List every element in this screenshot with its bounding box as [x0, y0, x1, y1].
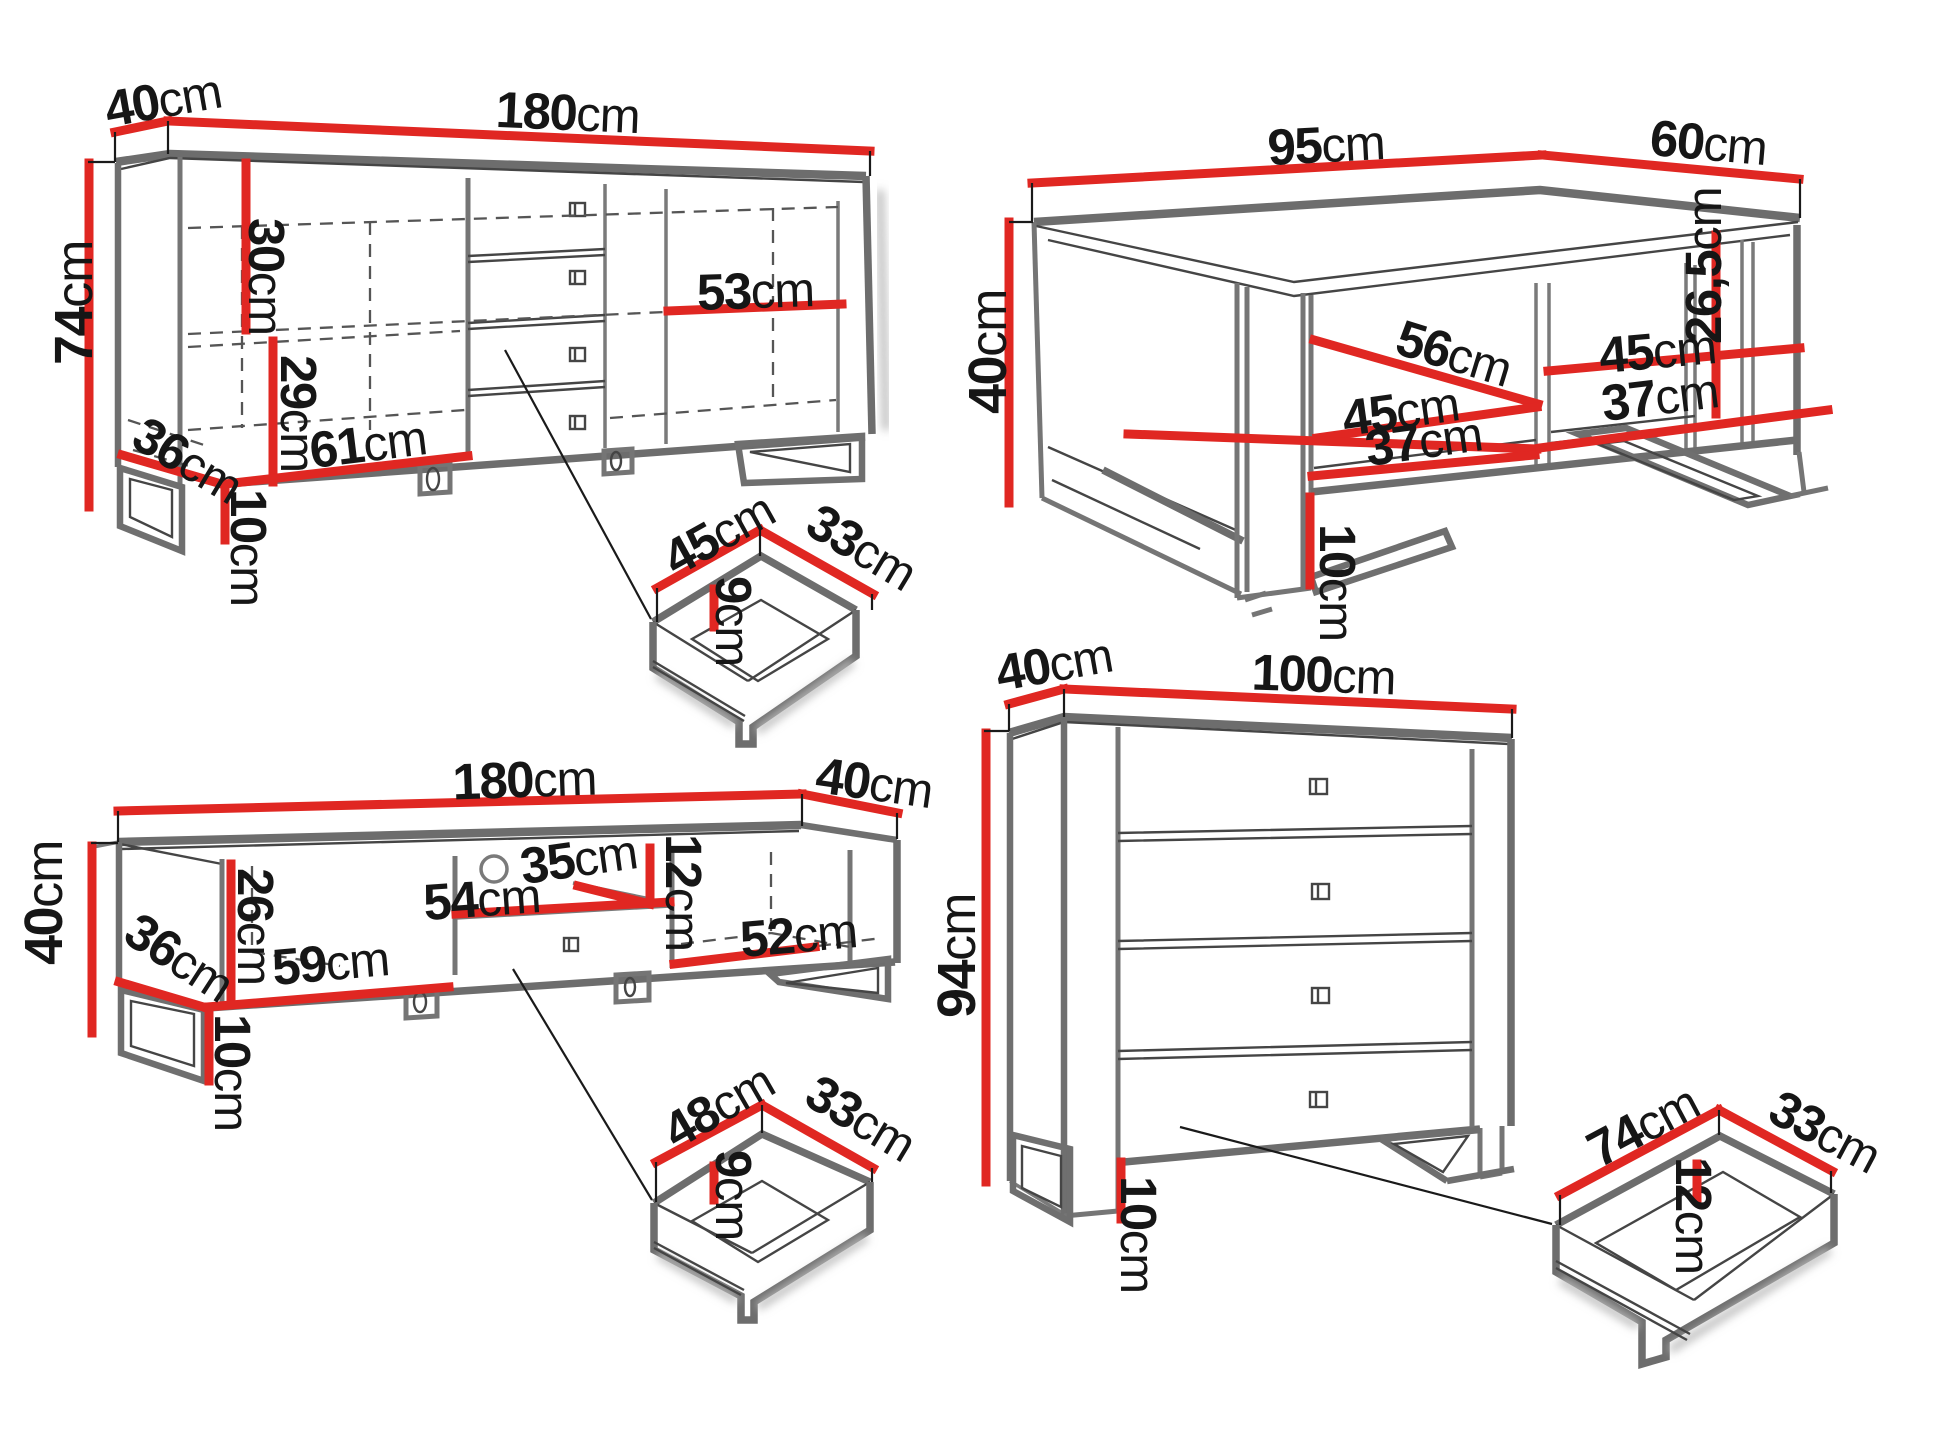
svg-text:94cm: 94cm [927, 894, 987, 1018]
svg-text:40cm: 40cm [14, 841, 74, 965]
svg-text:9cm: 9cm [705, 576, 762, 666]
svg-text:30cm: 30cm [238, 218, 295, 335]
svg-text:74cm: 74cm [44, 241, 104, 365]
svg-text:12cm: 12cm [1665, 1157, 1722, 1274]
svg-text:10cm: 10cm [204, 1014, 261, 1131]
svg-text:10cm: 10cm [1110, 1176, 1167, 1293]
svg-text:180cm: 180cm [451, 749, 597, 811]
svg-text:180cm: 180cm [495, 81, 641, 144]
svg-text:10cm: 10cm [1309, 524, 1366, 641]
svg-text:26,5cm: 26,5cm [1675, 187, 1732, 344]
svg-text:95cm: 95cm [1266, 113, 1386, 176]
svg-text:52cm: 52cm [738, 901, 860, 968]
svg-text:9cm: 9cm [705, 1150, 762, 1240]
svg-text:53cm: 53cm [696, 260, 815, 321]
svg-text:59cm: 59cm [270, 929, 392, 996]
svg-text:10cm: 10cm [220, 489, 277, 606]
svg-text:12cm: 12cm [655, 834, 712, 951]
svg-text:40cm: 40cm [958, 290, 1018, 414]
svg-text:100cm: 100cm [1251, 644, 1397, 706]
